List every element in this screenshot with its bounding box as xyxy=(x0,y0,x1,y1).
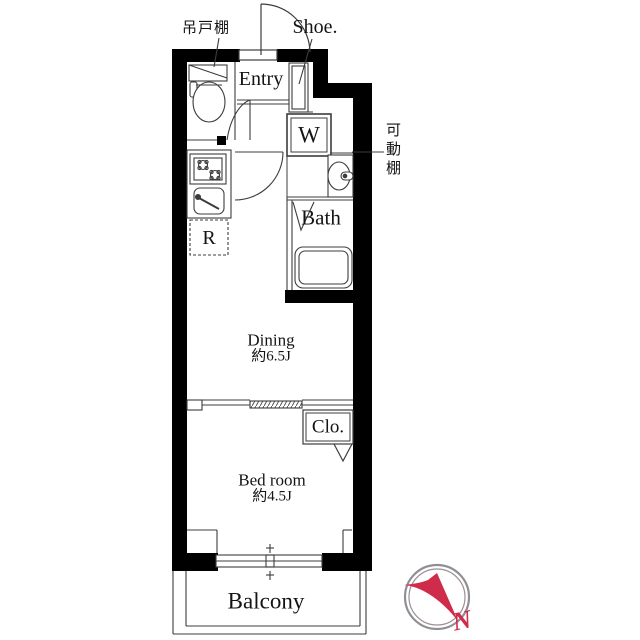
toilet-door xyxy=(227,100,250,140)
balcony-label: Balcony xyxy=(228,590,305,613)
dining-label: Dining xyxy=(247,332,294,349)
bathtub-icon xyxy=(295,247,352,288)
stove-icon xyxy=(190,154,226,184)
folding-door xyxy=(334,444,352,461)
hall-door xyxy=(235,100,289,200)
dining-size-label: 約6.5J xyxy=(251,350,291,365)
washbasin-icon xyxy=(328,153,353,197)
closet-label: Clo. xyxy=(312,418,344,437)
hanging-cupboard-label: 吊戸棚 xyxy=(182,22,230,37)
washing-machine-label: W xyxy=(298,124,320,147)
bedroom-size-label: 約4.5J xyxy=(252,490,292,505)
refrigerator-label: R xyxy=(202,228,215,248)
kitchen-counter xyxy=(187,150,231,218)
movable-shelf-label: 可動棚 xyxy=(384,122,399,179)
toilet-icon xyxy=(189,65,227,122)
sink-icon xyxy=(194,188,224,214)
room-partition xyxy=(187,400,353,410)
bath-label: Bath xyxy=(301,208,341,229)
bedroom-label: Bed room xyxy=(238,472,306,489)
shoe-closet-label: Shoe. xyxy=(293,17,338,37)
shoe-cabinet xyxy=(289,63,313,112)
sliding-door xyxy=(250,401,302,408)
entry-label: Entry xyxy=(239,69,283,89)
floorplan-drawing xyxy=(0,0,640,640)
floorplan-page: 吊戸棚 Shoe. Entry W 可動棚 Bath R Dining 約6.5… xyxy=(0,0,640,640)
